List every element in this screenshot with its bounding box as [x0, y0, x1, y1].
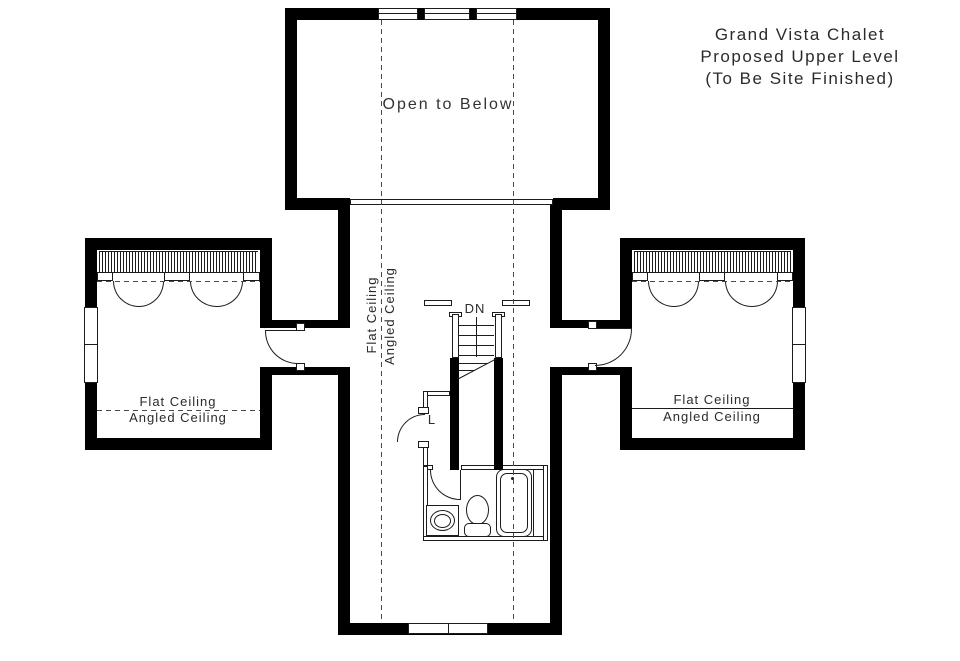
wall-segment [272, 367, 338, 375]
hall-angled-ceiling-label: Angled Ceiling [382, 261, 396, 371]
wall-segment [550, 367, 562, 635]
closet-door-jamb [777, 272, 793, 281]
closet-door-arc [648, 281, 674, 307]
stair-rail [495, 314, 502, 358]
title-line-3: (To Be Site Finished) [640, 68, 960, 90]
closet-shelving-hatch [634, 251, 791, 273]
window-glass-line [424, 13, 470, 14]
linen-closet-door-arc [397, 414, 425, 442]
window-mullion [792, 344, 806, 345]
closet-door-jamb [243, 272, 260, 281]
plumbing-chase-line [533, 470, 534, 536]
stair-rail [452, 314, 459, 358]
door-jamb [296, 363, 305, 371]
stair-direction-label: DN [460, 301, 490, 316]
bedroom-door-arc [265, 331, 298, 364]
toilet-tank [464, 523, 491, 537]
window [792, 307, 806, 383]
stairwell-wall [494, 358, 503, 470]
door-jamb [418, 441, 429, 448]
sink-basin-inner [434, 514, 451, 528]
closet-door-arc [190, 281, 217, 307]
closet-shelving-hatch [99, 251, 258, 273]
wall-segment [338, 367, 350, 635]
left-room-angled-ceiling-label: Angled Ceiling [108, 410, 248, 425]
stair-guardrail [502, 300, 530, 306]
floor-plan-canvas: Grand Vista Chalet Proposed Upper Level … [0, 0, 960, 661]
bathtub-basin [500, 473, 528, 533]
closet-door-arc [217, 281, 243, 307]
ceiling-break-dashed-line [632, 281, 793, 282]
closet-door-arc [752, 281, 778, 307]
closet-door-jamb [632, 272, 648, 281]
wall-segment [338, 205, 350, 328]
wall-segment [85, 238, 272, 250]
bathroom-wall [543, 465, 548, 541]
stair-guardrail [424, 300, 452, 306]
stair-centerline [476, 317, 477, 357]
window [84, 307, 98, 383]
left-room-flat-ceiling-label: Flat Ceiling [108, 394, 248, 409]
wall-segment [620, 238, 632, 328]
window-glass-line [476, 13, 517, 14]
closet-door-jamb [164, 272, 190, 281]
window [378, 8, 418, 20]
window [424, 8, 470, 20]
stair-centerline-tick [470, 325, 482, 326]
wall-segment [260, 238, 272, 328]
window-mullion [448, 624, 449, 633]
title-line-1: Grand Vista Chalet [640, 24, 960, 46]
wall-segment [620, 438, 805, 450]
window-glass-line [378, 13, 418, 14]
closet-door-jamb [97, 272, 113, 281]
bedroom-door-arc [595, 329, 632, 366]
hall-flat-ceiling-label: Flat Ceiling [364, 260, 378, 370]
wall-segment [620, 238, 805, 250]
wall-segment [598, 8, 610, 210]
closet-door-jamb [699, 272, 725, 281]
window [476, 8, 517, 20]
linen-closet-label: L [424, 412, 440, 427]
title-line-2: Proposed Upper Level [640, 46, 960, 68]
title-block: Grand Vista Chalet Proposed Upper Level … [640, 24, 960, 90]
wall-segment [85, 438, 272, 450]
right-room-flat-ceiling-label: Flat Ceiling [642, 392, 782, 407]
wall-segment [260, 367, 272, 450]
closet-door-arc [139, 281, 164, 307]
toilet-bowl [466, 495, 489, 525]
wall-segment [285, 8, 297, 210]
closet-door-arc [113, 281, 139, 307]
open-to-below-label: Open to Below [348, 96, 548, 114]
bathroom-door-arc [430, 470, 460, 500]
stair-break-line [459, 358, 498, 379]
wall-segment [272, 320, 338, 328]
right-room-angled-ceiling-label: Angled Ceiling [642, 409, 782, 424]
door-panel [460, 470, 461, 500]
wall-segment [620, 367, 632, 450]
closet-door-arc [674, 281, 699, 307]
closet-door-arc [725, 281, 752, 307]
stairwell-wall [450, 358, 459, 470]
ceiling-break-dashed-line [97, 281, 260, 282]
wall-segment [550, 205, 562, 328]
window-mullion [84, 344, 98, 345]
